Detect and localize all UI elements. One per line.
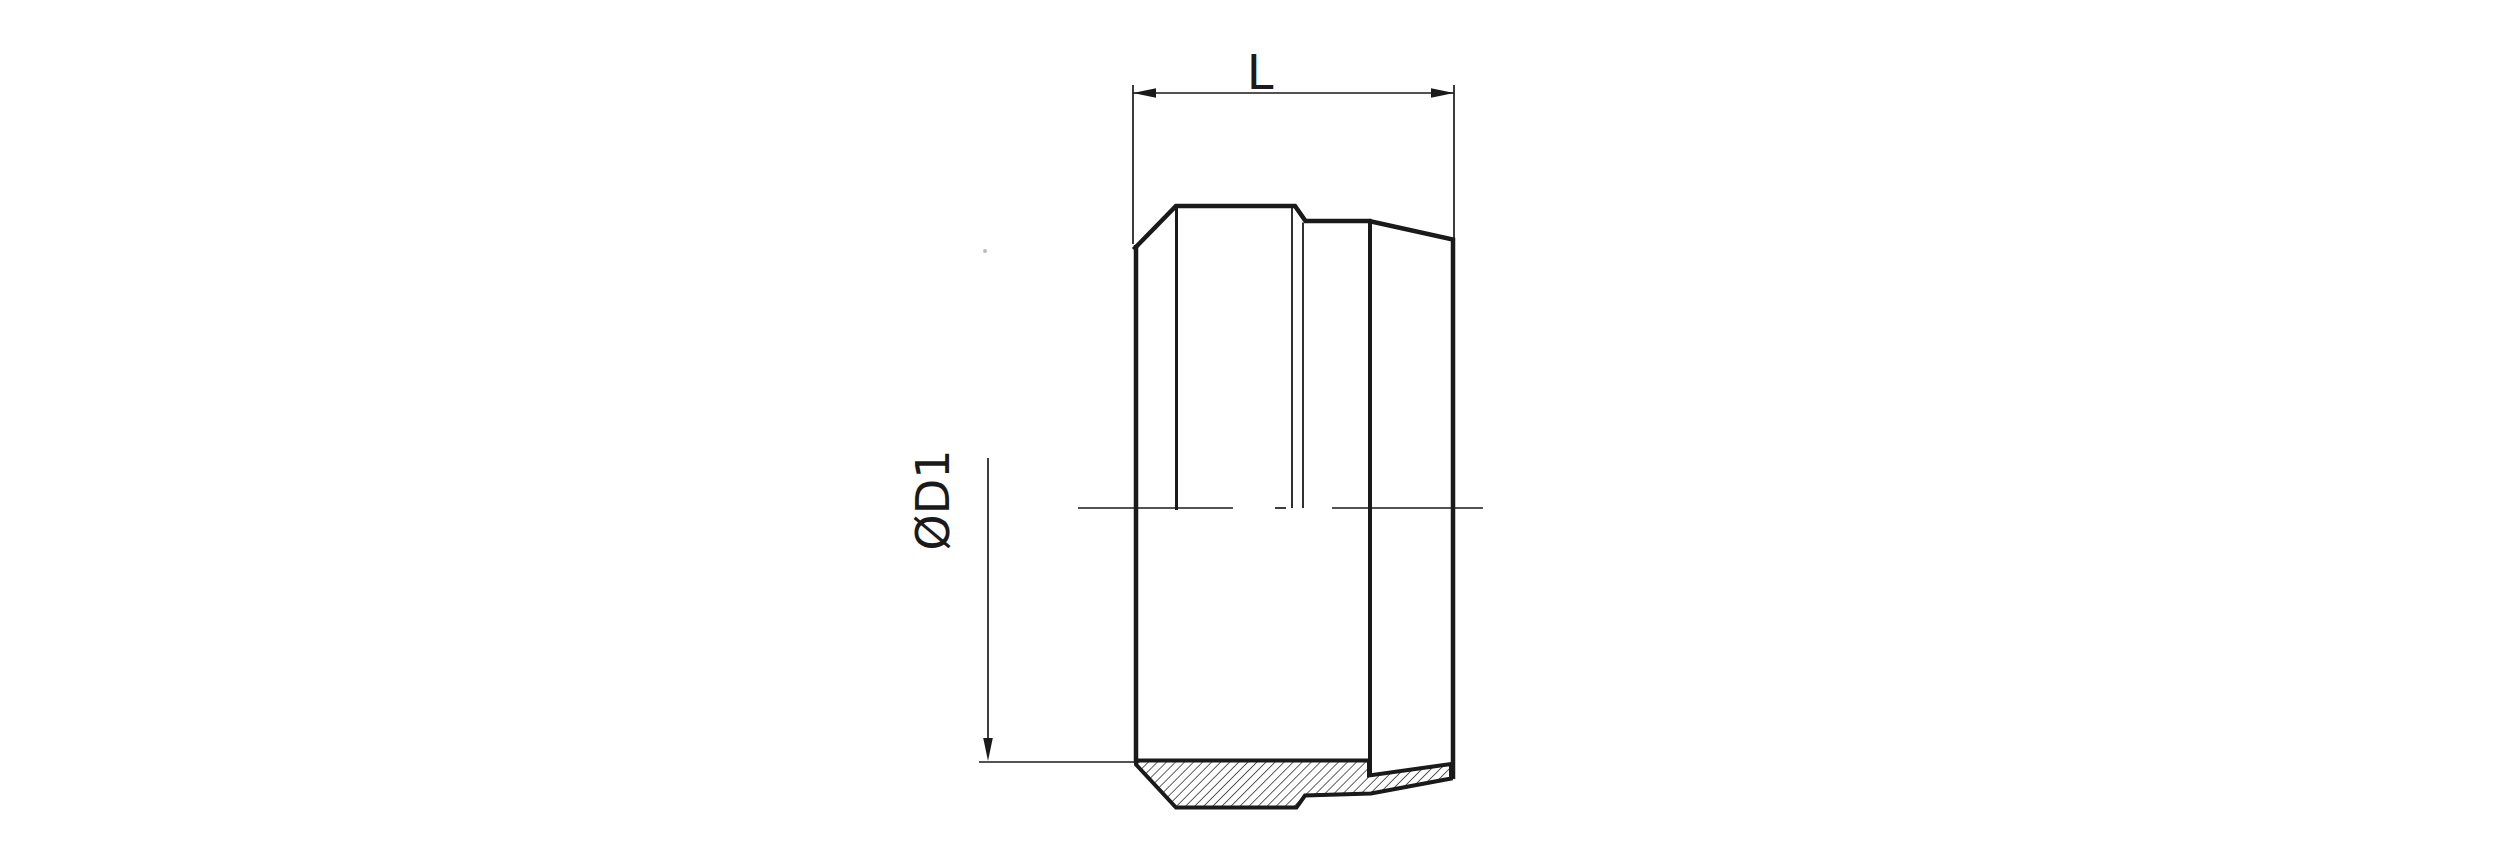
diameter-dimension-label: ØD1 <box>906 450 960 551</box>
arrowhead-down <box>983 738 993 761</box>
tail-taper-and-back-edge <box>1369 221 1453 779</box>
arrowhead-left <box>1133 88 1156 98</box>
dimension-length: L <box>1133 44 1454 244</box>
stray-mark <box>983 249 987 253</box>
drawing-canvas: L ØD1 <box>0 0 2500 854</box>
section-band <box>1136 761 1451 808</box>
length-dimension-label: L <box>1247 44 1274 100</box>
dimension-diameter: ØD1 <box>906 450 1136 762</box>
top-profile-chamfer-step <box>1134 206 1372 250</box>
cutting-ring-technical-drawing: L ØD1 <box>0 0 2500 854</box>
part-outline <box>1134 206 1454 779</box>
arrowhead-right <box>1431 88 1454 98</box>
hatched-section-wall <box>1136 761 1451 808</box>
